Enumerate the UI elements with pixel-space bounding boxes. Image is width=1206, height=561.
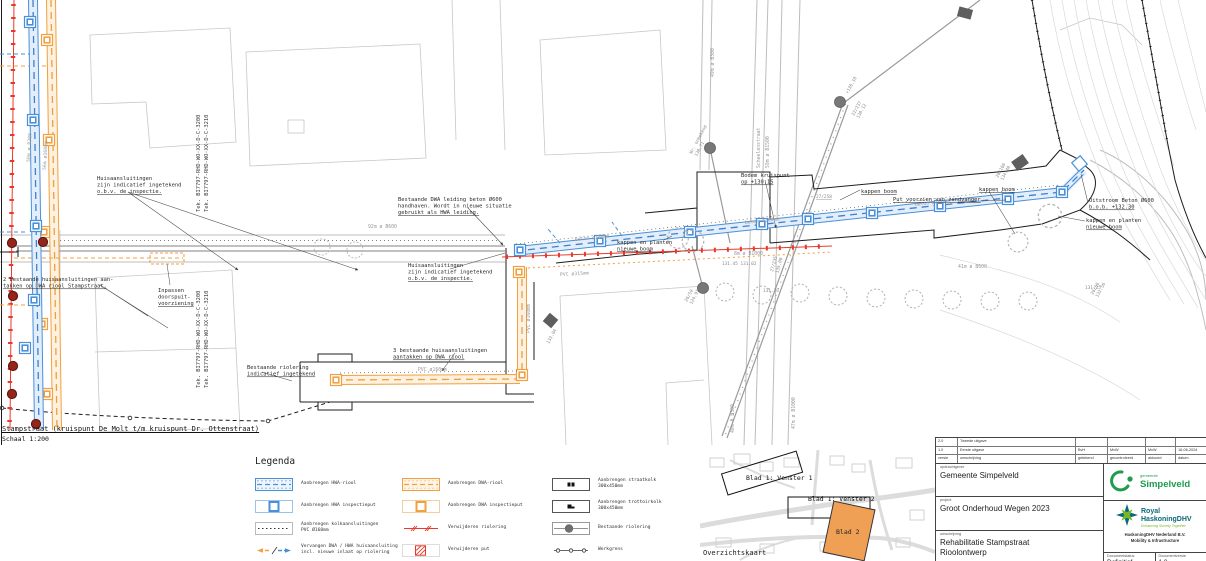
overview-streets	[700, 450, 935, 560]
svg-text:Tek. BI7797-RHD-WO-XX-D-C-3210: Tek. BI7797-RHD-WO-XX-D-C-3210	[204, 115, 210, 212]
svg-text:92m ø B600: 92m ø B600	[368, 224, 397, 230]
parcel-outlines	[90, 0, 1206, 445]
svg-text:gemeente: gemeente	[1140, 473, 1159, 478]
svg-text:PVC ø160mm: PVC ø160mm	[418, 367, 447, 373]
svg-text:takken op DWA riool Stampstraa: takken op DWA riool Stampstraat.	[3, 284, 107, 290]
title-block: 2.0 Tweede uitgave 1.0 Eerste uitgave Bv…	[935, 437, 1206, 561]
svg-text:doorspuit-: doorspuit-	[158, 295, 190, 301]
note-kappen-planten-mid: kappen en planten nieuwe boom	[617, 240, 672, 253]
svg-text:kappen en planten: kappen en planten	[1086, 218, 1141, 224]
svg-text:59m ø B1500: 59m ø B1500	[765, 136, 771, 168]
legend-column-3: Aanbrengen straatkolk300x450mm Aanbrenge…	[552, 477, 662, 557]
note-bodem-kruispunt: Bodem kruispunt op +130.15	[741, 173, 790, 186]
svg-text:Mobility & Infrastructure: Mobility & Infrastructure	[1131, 538, 1180, 543]
legend-column-1: Aanbrengen HWA-riool Aanbrengen HWA insp…	[255, 477, 398, 557]
legend-item-straatkolk: Aanbrengen straatkolk300x450mm	[552, 477, 662, 491]
site-plan: Tek. BI7797-RHD-WO-XX-D-C-3200 Tek. BI77…	[0, 0, 1206, 448]
svg-text:HaskoningDHV: HaskoningDHV	[1141, 516, 1192, 523]
svg-text:PVC ø315mm: PVC ø315mm	[560, 270, 589, 278]
document-version-cell: Documentversie 1.0	[1156, 553, 1206, 561]
buildings	[543, 6, 1029, 328]
description-cell: omschrijving Rehabilitatie Stampstraat R…	[936, 531, 1103, 561]
note-bestaande-riolering: Bestaande riolering indicatief ingeteken…	[247, 365, 315, 378]
svg-text:Bodem kruispunt: Bodem kruispunt	[741, 173, 790, 179]
legend-item-dwa-put: Aanbrengen DWA inspectieput	[402, 499, 523, 513]
simpelveld-logo-icon: gemeente Simpelveld	[1104, 464, 1204, 498]
rhdhv-logo-icon: Royal HaskoningDHV Enhancing Society Tog…	[1105, 501, 1205, 547]
svg-text:voorziening: voorziening	[158, 301, 194, 307]
replace-connection-icon	[255, 544, 293, 557]
svg-text:Bestaande DWA leiding beton Ø6: Bestaande DWA leiding beton Ø600	[398, 196, 502, 203]
new-hwa-pipes	[0, 0, 1087, 430]
note-kappen-boom-mid: kappen boom	[861, 189, 897, 195]
svg-text:Scheelenstraat: Scheelenstraat	[756, 127, 762, 168]
overview-blad2: Blad 2	[823, 501, 875, 561]
legend-item-hwa-riool: Aanbrengen HWA-riool	[255, 477, 398, 491]
work-boundary-icon	[552, 544, 590, 557]
document-status-row: Documentstatus Definitief Documentversie…	[1104, 553, 1206, 561]
svg-text:Blad 1: Venster 2: Blad 1: Venster 2	[808, 495, 875, 503]
svg-text:Bestaande riolering: Bestaande riolering	[247, 365, 309, 371]
caption-scale: Schaal 1:200	[2, 435, 259, 443]
svg-text:gebruikt als HWA leiding.: gebruikt als HWA leiding.	[398, 210, 479, 216]
note-kappen-planten-right: kappen en planten nieuwe boom	[1086, 218, 1141, 231]
overview-caption: Overzichtskaart	[703, 549, 766, 557]
svg-text:41m ø B600: 41m ø B600	[958, 264, 987, 270]
svg-text:Blad 2: Blad 2	[836, 528, 860, 536]
svg-text:indicatief ingetekend: indicatief ingetekend	[247, 372, 315, 378]
svg-text:Tek. BI7797-RHD-WO-XX-D-C-3200: Tek. BI7797-RHD-WO-XX-D-C-3200	[196, 291, 202, 388]
legend-item-trottoirkolk: Aanbrengen trottoirkolk300x450mm	[552, 499, 662, 513]
description-line-2: Rioolontwerp	[940, 548, 1099, 557]
svg-text:Huisaansluitingen: Huisaansluitingen	[408, 263, 463, 269]
note-huisaansluitingen-mid: Huisaansluitingen zijn indicatief ingete…	[408, 263, 492, 282]
caption-title: Stampstraat (kruispunt De Molt t/m kruis…	[2, 425, 259, 433]
svg-text:o.b.v. de inspectie.: o.b.v. de inspectie.	[97, 189, 162, 195]
svg-text:handhaven. Wordt in nieuwe sit: handhaven. Wordt in nieuwe situatie	[398, 204, 512, 210]
svg-text:o.b.v. de inspectie.: o.b.v. de inspectie.	[408, 276, 473, 282]
svg-text:Tek. BI7797-RHD-WO-XX-D-C-3200: Tek. BI7797-RHD-WO-XX-D-C-3200	[196, 115, 202, 212]
svg-text:Enhancing Society Together: Enhancing Society Together	[1141, 524, 1187, 528]
existing-sewer-icon	[552, 522, 590, 535]
note-aantakken-3: 3 bestaande huisaansluitingen aantakken …	[393, 348, 487, 361]
note-kappen-boom-right: kappen boom	[979, 187, 1015, 193]
legend-item-werkgrens: Werkgrens	[552, 543, 662, 557]
svg-text:27/258: 27/258	[816, 194, 832, 200]
gully-connection-icon	[255, 522, 293, 535]
dwa-pipe-icon	[402, 478, 440, 491]
remove-sewer-icon	[402, 522, 440, 535]
svg-text:3 bestaande huisaansluitingen: 3 bestaande huisaansluitingen	[393, 348, 487, 354]
svg-text:40m ø B300: 40m ø B300	[730, 404, 736, 433]
svg-text:+130.18: +130.18	[844, 75, 858, 94]
legend-column-2: Aanbrengen DWA-riool Aanbrengen DWA insp…	[402, 477, 523, 557]
note-inpassen-doorspuit: Inpassen doorspuit- voorziening	[158, 288, 194, 307]
legend-item-dwa-riool: Aanbrengen DWA-riool	[402, 477, 523, 491]
svg-text:Uitstroom Beton Ø600: Uitstroom Beton Ø600	[1089, 197, 1154, 204]
legend-item-hwa-put: Aanbrengen HWA inspectieput	[255, 499, 398, 513]
curb-gully-icon	[552, 500, 590, 513]
legend-item-bestaande-riolering: Bestaande riolering	[552, 521, 662, 535]
dwa-manhole-icon	[402, 500, 440, 513]
legend-item-vervangen-huisaansluiting: Vervangen DWA / HWA huisaansluitingincl.…	[255, 543, 398, 557]
hwa-manhole-icon	[255, 500, 293, 513]
svg-text:Inpassen: Inpassen	[158, 288, 184, 294]
svg-text:8m ø B1000: 8m ø B1000	[734, 251, 763, 257]
legend-item-verwijderen-put: Verwijderen put	[402, 543, 523, 557]
hwa-pipe-icon	[255, 478, 293, 491]
svg-text:zijn indicatief ingetekend: zijn indicatief ingetekend	[97, 183, 181, 189]
drawing-sheet: Tek. BI7797-RHD-WO-XX-D-C-3200 Tek. BI77…	[0, 0, 1206, 561]
svg-text:Royal: Royal	[1141, 508, 1160, 515]
legend-item-kolkaansluiting: Aanbrengen kolkaansluitingenPVC Ø160mm	[255, 521, 398, 535]
svg-text:131.76: 131.76	[763, 288, 779, 294]
overview-map-canvas: Blad 1: Venster 1 Blad 1: Venster 2 Blad…	[700, 450, 935, 561]
note-huisaansluitingen-left: Huisaansluitingen zijn indicatief ingete…	[97, 176, 181, 195]
remove-manhole-icon	[402, 544, 440, 557]
contour-lines	[1050, 0, 1206, 308]
sheet-caption: Stampstraat (kruispunt De Molt t/m kruis…	[2, 425, 259, 443]
svg-text:nieuwe boom: nieuwe boom	[1086, 225, 1122, 231]
project-cell: project Groot Onderhoud Wegen 2023	[936, 497, 1103, 531]
svg-text:PVC ø160mm: PVC ø160mm	[526, 304, 532, 333]
svg-text:Blad 1: Venster 1: Blad 1: Venster 1	[746, 474, 813, 482]
project-name: Groot Onderhoud Wegen 2023	[940, 504, 1099, 513]
svg-text:HaskoningDHV Nederland B.V.: HaskoningDHV Nederland B.V.	[1125, 532, 1186, 537]
werkgrens-lines	[0, 0, 1206, 445]
svg-text:131.45 131.02: 131.45 131.02	[722, 261, 757, 267]
svg-text:49m ø B300: 49m ø B300	[710, 48, 716, 77]
note-aantakken-2: 2 bestaande huisaansluitingen aan- takke…	[3, 277, 113, 290]
note-bestaande-dwa: Bestaande DWA leiding beton Ø600 handhav…	[398, 196, 512, 216]
revision-table: 2.0 Tweede uitgave 1.0 Eerste uitgave Bv…	[936, 438, 1206, 464]
svg-text:Tek. BI7797-RHD-WO-XX-D-C-3210: Tek. BI7797-RHD-WO-XX-D-C-3210	[204, 291, 210, 388]
svg-text:op +130.15: op +130.15	[741, 180, 773, 186]
svg-text:zijn indicatief ingetekend: zijn indicatief ingetekend	[408, 270, 492, 276]
note-uitstroom: Uitstroom Beton Ø600 b.o.b. +132.30	[1089, 197, 1154, 211]
svg-text:Huisaansluitingen: Huisaansluitingen	[97, 176, 152, 182]
simpelveld-logo: gemeente Simpelveld	[1104, 464, 1206, 501]
svg-text:b.o.b. +132.30: b.o.b. +132.30	[1089, 205, 1134, 211]
legend-title: Legenda	[255, 456, 295, 467]
svg-text:47m ø B1000: 47m ø B1000	[791, 397, 797, 429]
rhdhv-logo: Royal HaskoningDHV Enhancing Society Tog…	[1104, 501, 1206, 553]
svg-text:nieuwe boom: nieuwe boom	[617, 247, 653, 253]
overview-map: Blad 1: Venster 1 Blad 1: Venster 2 Blad…	[700, 450, 935, 561]
client-cell: opdrachtgever Gemeente Simpelveld	[936, 464, 1103, 498]
svg-text:kappen en planten: kappen en planten	[617, 240, 672, 246]
legend-item-verwijderen-riolering: Verwijderen riolering	[402, 521, 523, 535]
svg-text:133.04: 133.04	[545, 328, 558, 345]
description-line-1: Rehabilitatie Stampstraat	[940, 538, 1099, 547]
svg-text:Simpelveld: Simpelveld	[1140, 479, 1190, 490]
street-gully-icon	[552, 478, 590, 491]
svg-text:aantakken op DWA riool: aantakken op DWA riool	[393, 355, 464, 361]
svg-text:2 bestaande huisaansluitingen: 2 bestaande huisaansluitingen aan-	[3, 277, 113, 283]
document-status-cell: Documentstatus Definitief	[1104, 553, 1156, 561]
client-name: Gemeente Simpelveld	[940, 471, 1099, 480]
